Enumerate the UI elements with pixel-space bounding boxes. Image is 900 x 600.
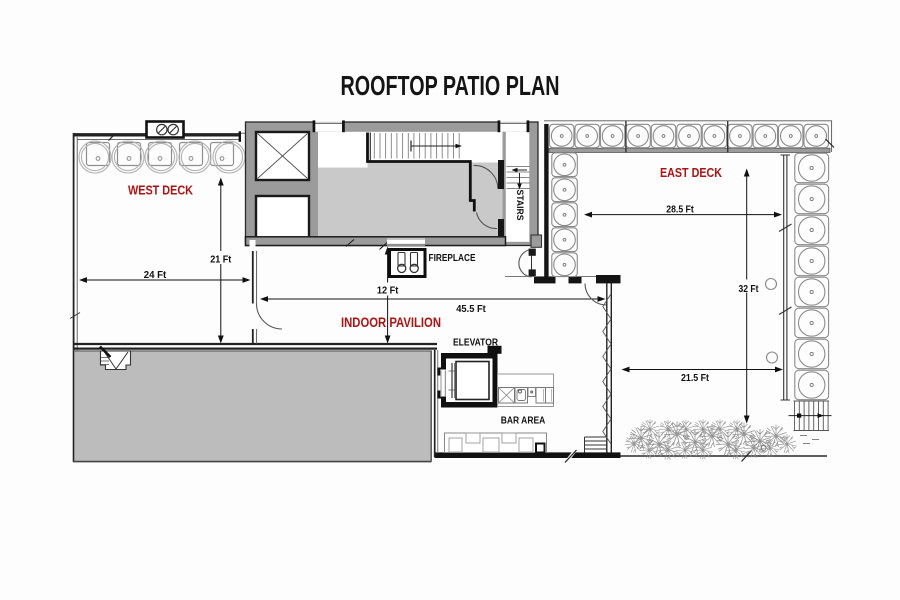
svg-text:INDOOR PAVILION: INDOOR PAVILION [341,315,441,330]
svg-text:STAIRS: STAIRS [514,190,525,221]
svg-text:BAR AREA: BAR AREA [501,415,546,426]
svg-text:21.5 Ft: 21.5 Ft [681,373,710,384]
svg-text:12 Ft: 12 Ft [377,286,399,297]
svg-text:28.5 Ft: 28.5 Ft [666,205,694,216]
svg-text:21 Ft: 21 Ft [210,255,232,266]
svg-text:EAST DECK: EAST DECK [660,165,722,180]
svg-text:FIREPLACE: FIREPLACE [429,253,476,264]
svg-text:ROOFTOP PATIO PLAN: ROOFTOP PATIO PLAN [341,70,560,101]
svg-text:24 Ft: 24 Ft [144,270,167,281]
svg-text:45.5 Ft: 45.5 Ft [456,304,486,315]
svg-text:32 Ft: 32 Ft [739,284,760,295]
svg-text:WEST DECK: WEST DECK [128,183,194,198]
